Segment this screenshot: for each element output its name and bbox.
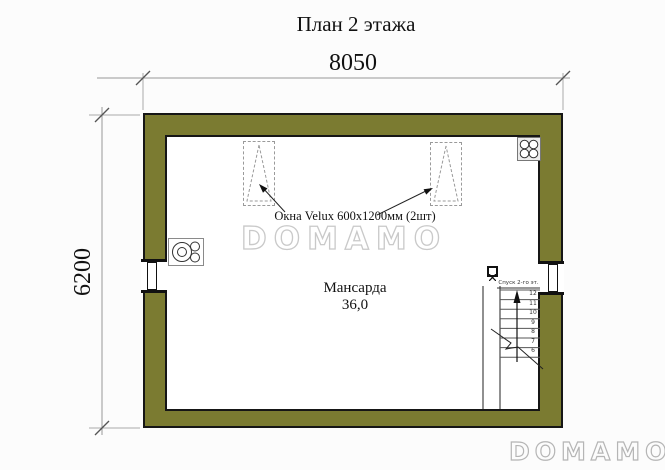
dimension-top-value: 8050 bbox=[303, 50, 403, 77]
stair-step-number: 6 bbox=[527, 347, 539, 354]
stove-burners bbox=[169, 239, 203, 265]
right-wall-window-frame bbox=[548, 264, 558, 292]
stair-step-number: 9 bbox=[527, 319, 539, 326]
dimension-left-value: 6200 bbox=[70, 222, 98, 322]
watermark-center: DOMAMO bbox=[241, 221, 447, 257]
vent-circles bbox=[518, 138, 540, 160]
vent-grid-icon bbox=[517, 137, 541, 161]
stove-icon bbox=[168, 238, 204, 266]
stair-step-number: 11 bbox=[527, 300, 539, 307]
roof-window-right bbox=[430, 142, 462, 206]
roof-window-left bbox=[243, 141, 275, 206]
room-name: Мансарда bbox=[305, 280, 405, 297]
stair-step-number: 10 bbox=[527, 309, 539, 316]
stair-step-number: 8 bbox=[527, 328, 539, 335]
floor-plan-canvas: План 2 этажа 8050 6200 О bbox=[0, 0, 665, 470]
room-area: 36,0 bbox=[305, 297, 405, 314]
crossed-box-x bbox=[489, 274, 496, 281]
stair-step-number: 12 bbox=[527, 290, 539, 297]
stair-step-number: 7 bbox=[527, 338, 539, 345]
watermark-corner: DOMAMO bbox=[509, 437, 665, 466]
stairs-label: Спуск 2-го эт. bbox=[497, 280, 540, 286]
left-wall-window-frame bbox=[147, 262, 157, 290]
crossed-box-icon bbox=[487, 266, 498, 277]
room-interior bbox=[165, 135, 540, 411]
page-title: План 2 этажа bbox=[256, 12, 456, 37]
